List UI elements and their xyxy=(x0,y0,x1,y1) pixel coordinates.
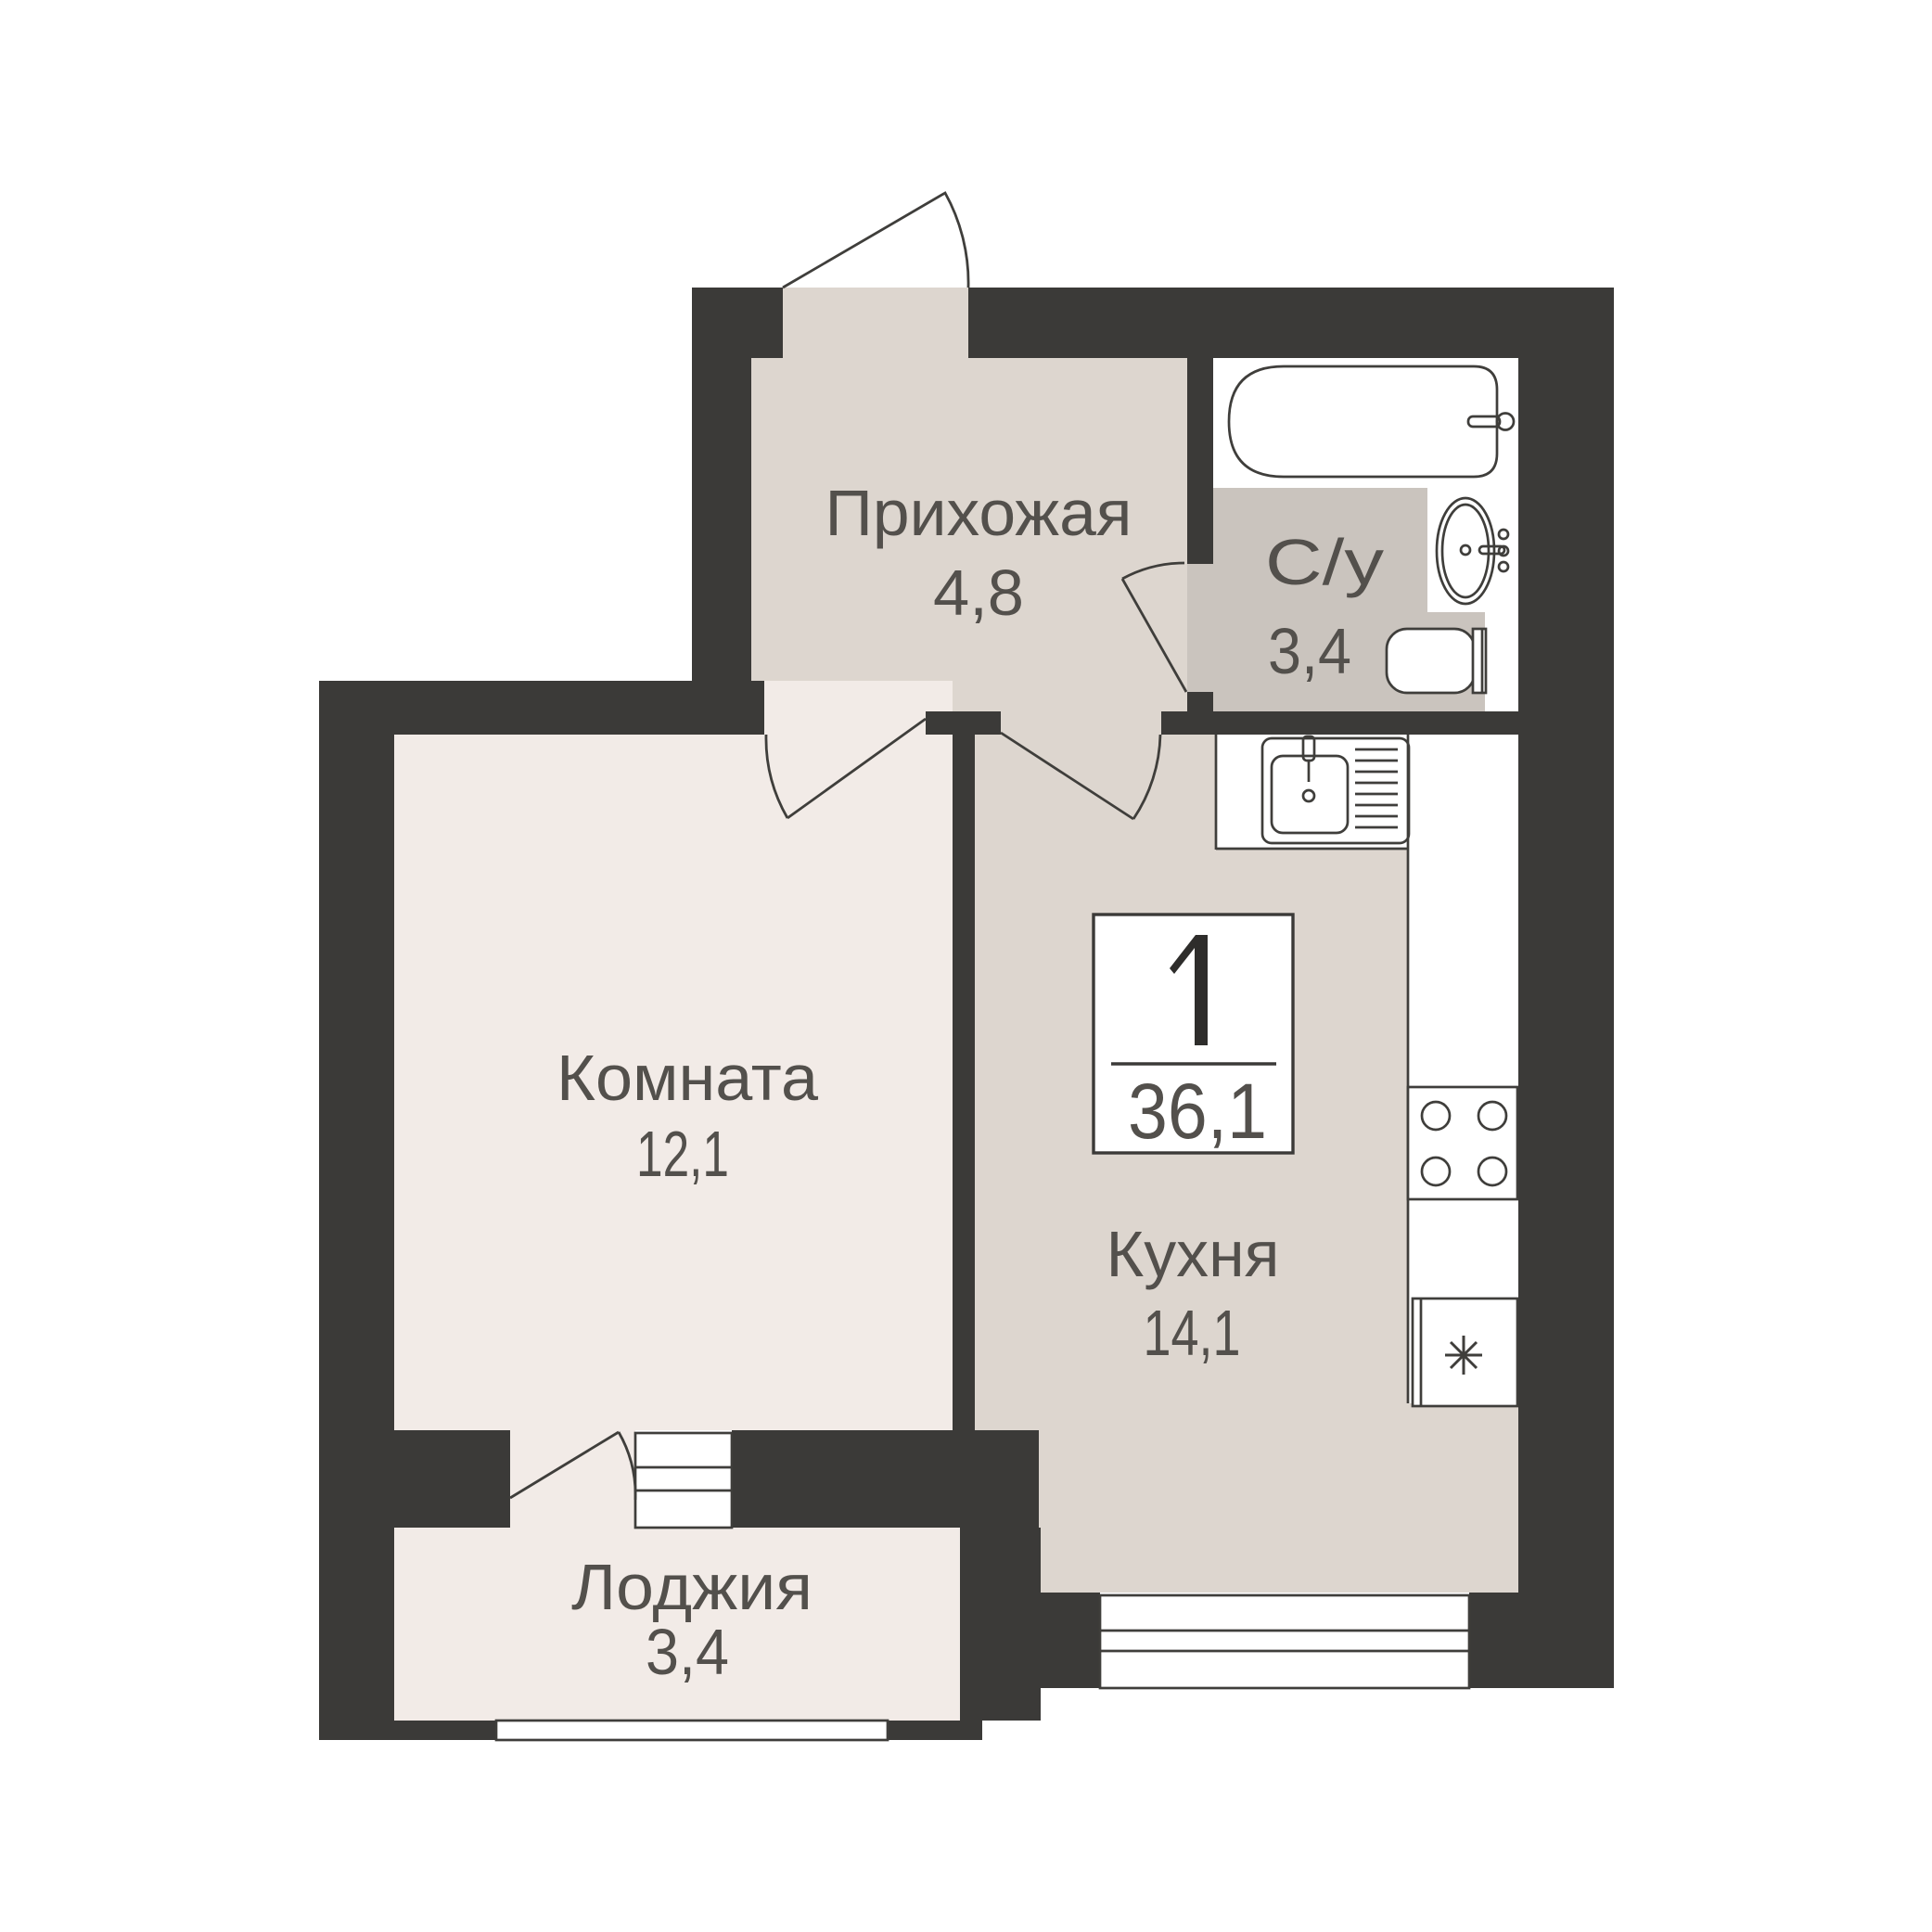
svg-text:4,8: 4,8 xyxy=(933,557,1024,629)
svg-text:14,1: 14,1 xyxy=(1144,1297,1241,1369)
svg-text:С/у: С/у xyxy=(1265,526,1384,598)
svg-text:Кухня: Кухня xyxy=(1107,1218,1280,1290)
svg-text:Прихожая: Прихожая xyxy=(825,477,1132,549)
svg-text:3,4: 3,4 xyxy=(646,1616,729,1688)
svg-text:Лоджия: Лоджия xyxy=(571,1551,812,1623)
svg-text:12,1: 12,1 xyxy=(636,1118,729,1190)
svg-text:36,1: 36,1 xyxy=(1128,1068,1267,1155)
svg-text:Комната: Комната xyxy=(557,1042,818,1114)
svg-text:3,4: 3,4 xyxy=(1268,615,1351,687)
